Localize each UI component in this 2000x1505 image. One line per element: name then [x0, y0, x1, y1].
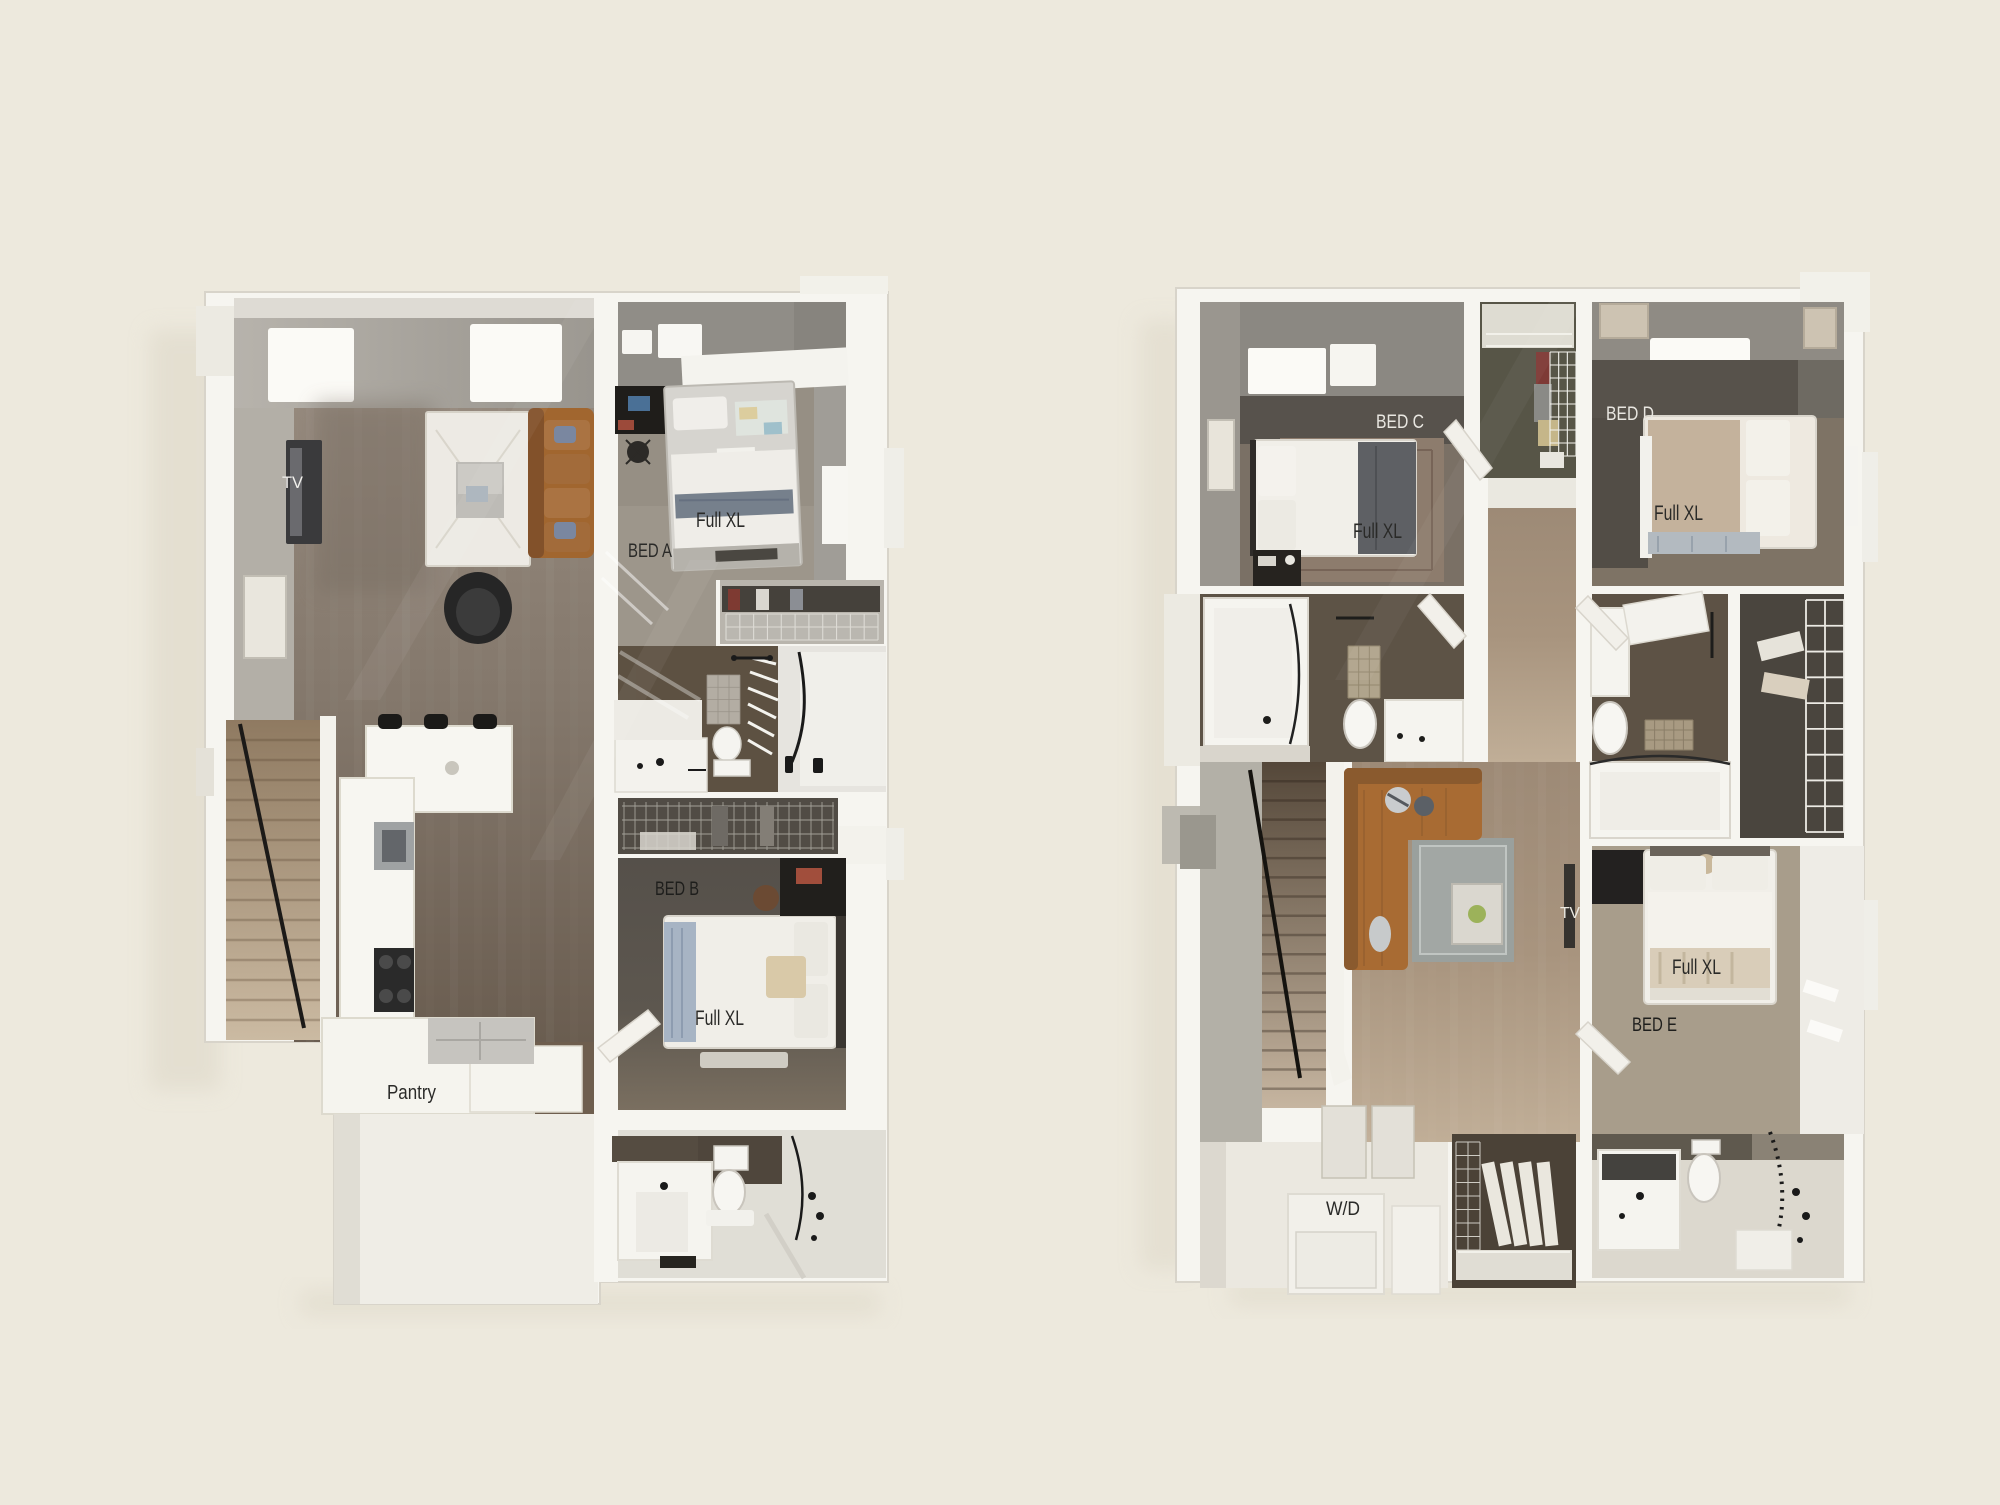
svg-text:Full XL: Full XL: [695, 1007, 744, 1030]
svg-text:BED A: BED A: [628, 541, 672, 562]
svg-text:Full XL: Full XL: [696, 509, 745, 532]
svg-text:Full XL: Full XL: [1672, 956, 1721, 979]
svg-text:BED C: BED C: [1376, 412, 1424, 433]
svg-text:W/D: W/D: [1326, 1199, 1360, 1220]
svg-text:Pantry: Pantry: [387, 1082, 436, 1104]
svg-text:BED D: BED D: [1606, 404, 1654, 425]
svg-text:TV: TV: [282, 473, 304, 492]
svg-text:BED E: BED E: [1632, 1015, 1677, 1036]
svg-text:Full XL: Full XL: [1353, 520, 1402, 543]
svg-text:BED B: BED B: [655, 879, 699, 900]
svg-text:Full XL: Full XL: [1654, 502, 1703, 525]
svg-text:TV: TV: [1560, 905, 1580, 922]
